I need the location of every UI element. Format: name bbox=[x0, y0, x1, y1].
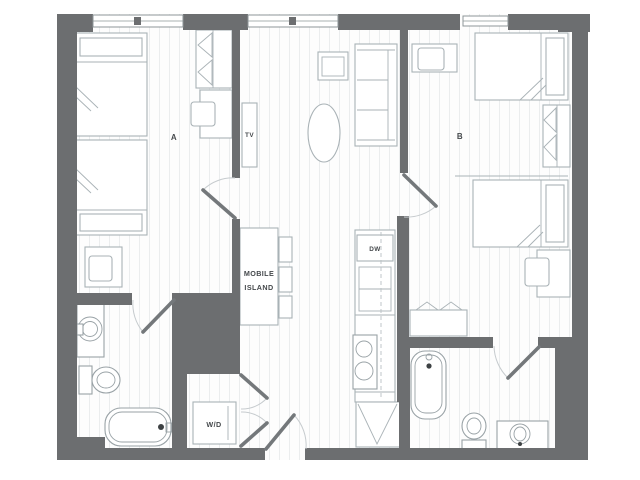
bed-icon bbox=[75, 140, 147, 235]
bed-icon bbox=[475, 33, 568, 100]
toilet-icon bbox=[462, 413, 486, 449]
bathtub-icon bbox=[105, 408, 172, 446]
bottom-wall bbox=[57, 448, 265, 460]
refrigerator-icon bbox=[356, 402, 400, 447]
kitchen-sink-icon bbox=[353, 335, 377, 389]
vanity-sink-icon bbox=[497, 421, 548, 449]
coffee-table-icon bbox=[308, 104, 340, 162]
right-wall bbox=[572, 30, 588, 460]
window-icon bbox=[93, 15, 183, 27]
bottom-wall bbox=[305, 448, 588, 460]
bathtub-icon bbox=[411, 351, 446, 419]
floor-plan: A B TV MOBILE ISLAND DW W/D bbox=[0, 0, 640, 480]
vanity-sink-icon bbox=[77, 304, 104, 357]
bed-icon bbox=[75, 33, 147, 136]
tv-label: TV bbox=[245, 132, 254, 139]
bedroom-a-label: A bbox=[171, 133, 177, 142]
dishwasher-label: DW bbox=[369, 246, 381, 253]
mobile-island-label-line2: ISLAND bbox=[244, 283, 273, 292]
mobile-island-label-line1: MOBILE bbox=[244, 269, 274, 278]
desk-with-chair-icon bbox=[85, 247, 122, 287]
armchair-icon bbox=[318, 52, 348, 80]
wardrobe-icon bbox=[196, 30, 232, 88]
bedroom-b-label: B bbox=[457, 132, 463, 141]
stool-icon bbox=[279, 237, 292, 262]
window-icon bbox=[248, 15, 338, 27]
stool-icon bbox=[279, 296, 292, 318]
desk-with-chair-icon bbox=[412, 44, 457, 72]
kitchen bbox=[353, 230, 400, 447]
wardrobe-icon bbox=[543, 105, 570, 167]
left-wall bbox=[57, 14, 77, 460]
stool-icon bbox=[279, 267, 292, 292]
toilet-icon bbox=[79, 366, 120, 394]
sofa-icon bbox=[355, 44, 397, 146]
washer-dryer-label: W/D bbox=[206, 420, 221, 429]
floor-plan-drawing: A B TV MOBILE ISLAND DW W/D bbox=[0, 0, 640, 480]
window-icon bbox=[463, 16, 508, 26]
